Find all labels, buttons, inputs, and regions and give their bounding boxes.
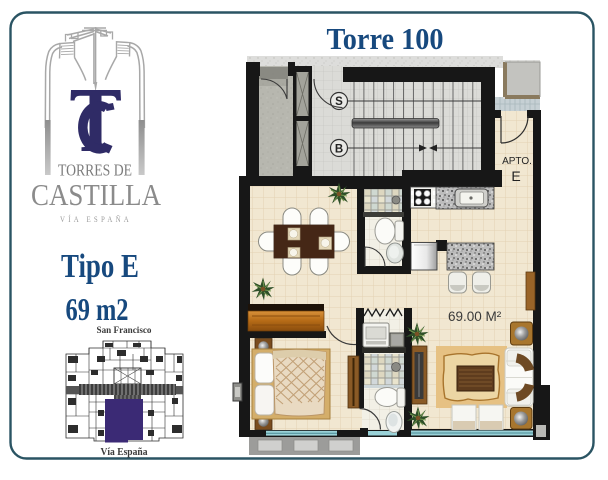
svg-text:Tipo E: Tipo E bbox=[61, 248, 139, 285]
svg-text:Vía España: Vía España bbox=[101, 447, 149, 458]
svg-text:69 m2: 69 m2 bbox=[66, 291, 129, 327]
svg-text:APTO.: APTO. bbox=[502, 156, 532, 167]
svg-text:B: B bbox=[335, 143, 343, 155]
svg-text:69.00 M²: 69.00 M² bbox=[448, 309, 502, 324]
svg-text:Torre 100: Torre 100 bbox=[327, 21, 444, 56]
svg-text:VÍA ESPAÑA: VÍA ESPAÑA bbox=[60, 214, 132, 224]
svg-text:CASTILLA: CASTILLA bbox=[31, 177, 162, 212]
svg-text:E: E bbox=[511, 168, 520, 184]
svg-text:San Francisco: San Francisco bbox=[97, 326, 152, 336]
